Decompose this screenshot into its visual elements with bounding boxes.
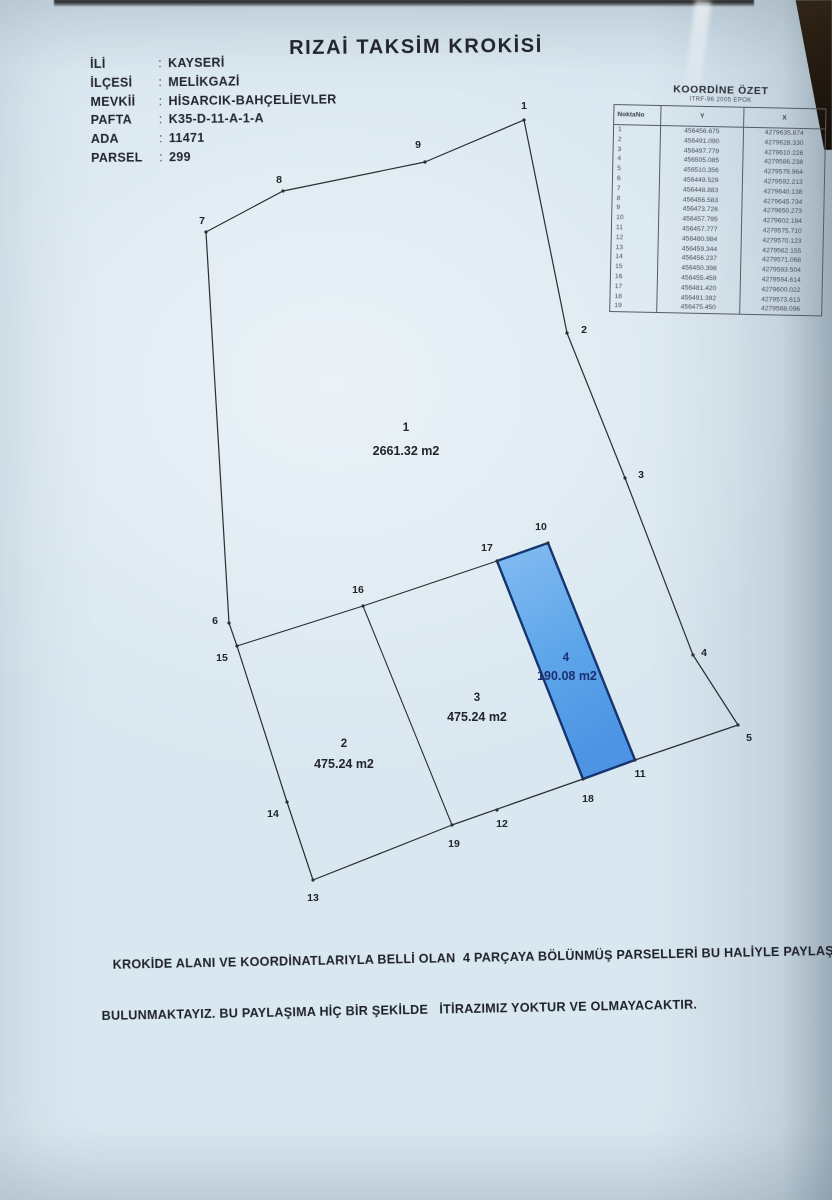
point-label: 16 (352, 584, 364, 596)
vertex-dot (423, 160, 426, 163)
vertex-dot (565, 331, 568, 334)
point-label: 4 (701, 647, 707, 659)
vertex-dot (633, 758, 636, 761)
point-label: 19 (448, 838, 460, 850)
point-label: 6 (212, 615, 218, 627)
point-label: 9 (415, 139, 421, 151)
point-label: 14 (267, 808, 279, 820)
vertex-dot (495, 559, 498, 562)
vertex-dot (311, 878, 314, 881)
document-photo: RIZAİ TAKSİM KROKİSİ İLİ : KAYSERİ İLÇES… (0, 0, 832, 1200)
parcel-area-label: 475.24 m2 (314, 757, 374, 771)
point-label: 13 (307, 892, 319, 904)
interior-boundary-line (237, 606, 363, 646)
vertex-dot (581, 777, 584, 780)
point-label: 15 (216, 652, 228, 664)
vertex-dot (281, 189, 284, 192)
vertex-dot (235, 644, 238, 647)
declaration-line-1: KROKİDE ALANI VE KOORDİNATLARIYLA BELLİ … (113, 943, 832, 971)
point-label: 12 (496, 818, 508, 830)
parcel-number-label: 2 (341, 738, 347, 750)
point-label: 2 (581, 324, 587, 336)
parcel-area-label: 190.08 m2 (537, 669, 597, 683)
parcel-number-label: 3 (474, 692, 480, 704)
point-label: 8 (276, 174, 282, 186)
interior-boundary-line (363, 606, 452, 825)
interior-boundary-line (363, 561, 497, 606)
point-label: 17 (481, 542, 493, 554)
vertex-dot (522, 118, 525, 121)
parcel-area-label: 2661.32 m2 (373, 444, 440, 458)
parcel-number-label: 4 (563, 652, 570, 664)
vertex-dot (285, 800, 288, 803)
point-label: 5 (746, 732, 752, 744)
parcel-number-label: 1 (403, 422, 410, 434)
vertex-dot (450, 823, 453, 826)
vertex-dot (691, 653, 694, 656)
point-label: 18 (582, 793, 594, 805)
point-label: 11 (634, 768, 645, 780)
declaration-line-2: BULUNMAKTAYIZ. BU PAYLAŞIMA HİÇ BİR ŞEKİ… (102, 994, 832, 1023)
parcel-area-label: 475.24 m2 (447, 710, 507, 724)
point-label: 1 (521, 100, 527, 112)
vertex-dot (361, 604, 364, 607)
point-label: 3 (638, 469, 644, 481)
vertex-dot (204, 230, 207, 233)
vertex-dot (546, 541, 549, 544)
declaration-statement: KROKİDE ALANI VE KOORDİNATLARIYLA BELLİ … (100, 915, 832, 1050)
outer-boundary-line (206, 120, 738, 880)
vertex-dot (227, 621, 230, 624)
vertex-dot (495, 808, 498, 811)
vertex-dot (623, 476, 626, 479)
point-label: 7 (199, 215, 205, 227)
vertex-dot (736, 723, 739, 726)
point-label: 10 (535, 521, 547, 533)
